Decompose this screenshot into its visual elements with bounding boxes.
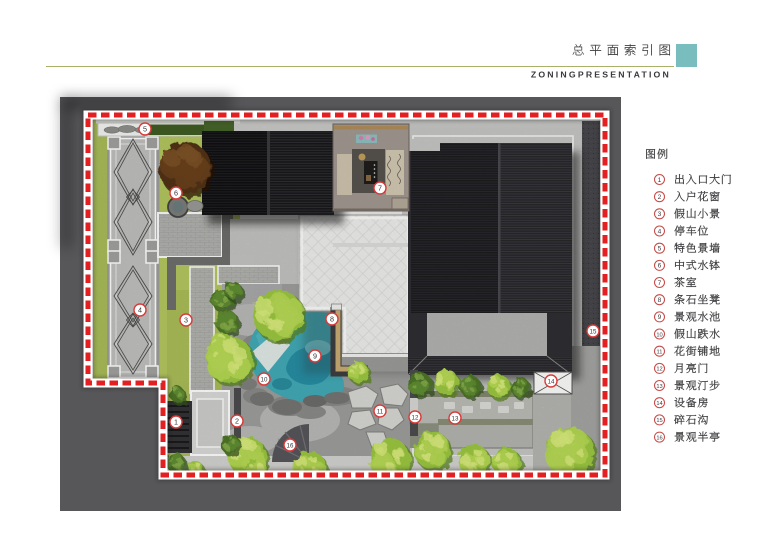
svg-text:10: 10 (261, 376, 268, 383)
svg-text:9: 9 (313, 351, 317, 360)
svg-text:3: 3 (184, 315, 188, 324)
svg-text:16: 16 (656, 435, 662, 441)
svg-text:7: 7 (378, 183, 382, 192)
svg-text:8: 8 (658, 297, 662, 304)
svg-text:1: 1 (658, 177, 662, 184)
svg-text:2: 2 (658, 194, 662, 201)
svg-text:ZONINGPRESENTATION: ZONINGPRESENTATION (531, 70, 671, 80)
svg-text:6: 6 (174, 188, 178, 197)
svg-text:12: 12 (412, 414, 419, 421)
svg-text:14: 14 (548, 378, 555, 385)
svg-text:15: 15 (656, 418, 662, 424)
svg-text:11: 11 (377, 408, 384, 415)
svg-text:12: 12 (656, 367, 662, 373)
svg-text:9: 9 (658, 314, 662, 321)
svg-text:13: 13 (452, 415, 459, 422)
svg-text:3: 3 (658, 211, 662, 218)
svg-text:11: 11 (657, 350, 663, 356)
svg-text:2: 2 (235, 416, 239, 425)
svg-text:15: 15 (590, 328, 597, 335)
svg-text:1: 1 (174, 417, 178, 426)
svg-text:4: 4 (658, 228, 662, 235)
svg-text:5: 5 (143, 124, 147, 133)
svg-text:4: 4 (138, 305, 142, 314)
svg-text:8: 8 (330, 314, 334, 323)
svg-text:13: 13 (656, 384, 662, 390)
svg-text:7: 7 (658, 280, 662, 287)
svg-text:10: 10 (656, 332, 662, 338)
svg-text:6: 6 (658, 263, 662, 270)
svg-text:5: 5 (658, 246, 662, 253)
svg-text:16: 16 (287, 442, 294, 449)
svg-text:14: 14 (656, 401, 662, 407)
